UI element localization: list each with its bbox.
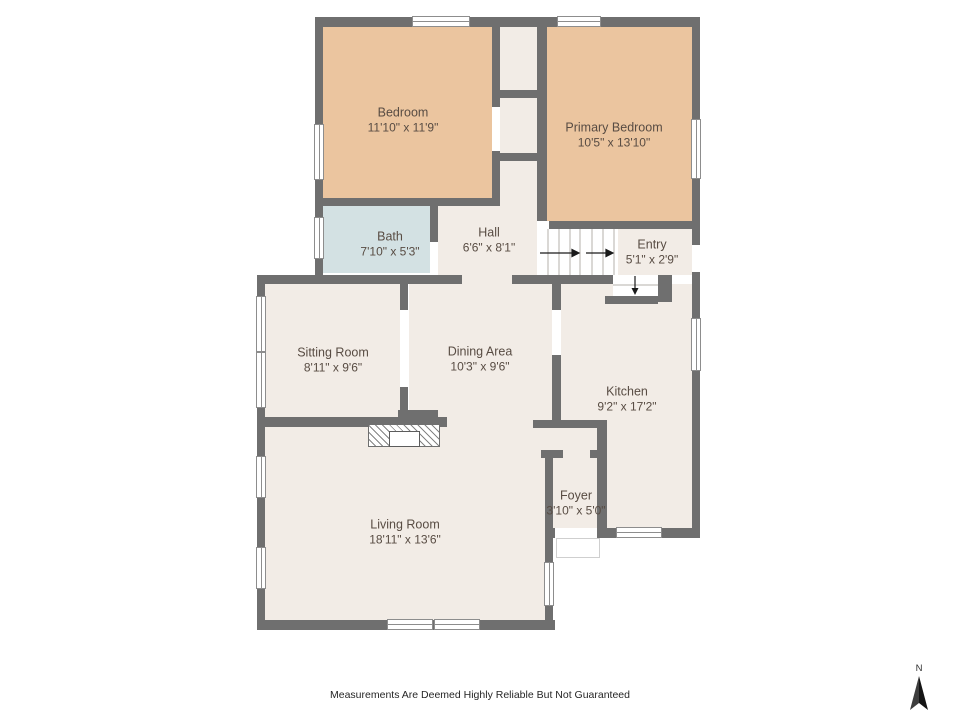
room-dims: 8'11" x 9'6" bbox=[297, 360, 369, 374]
wall-segment bbox=[500, 90, 537, 98]
window-marker bbox=[314, 217, 324, 259]
wall-segment bbox=[400, 284, 408, 310]
wall-segment bbox=[549, 221, 700, 229]
room-label-hall: Hall 6'6" x 8'1" bbox=[463, 226, 515, 255]
room-dims: 9'2" x 17'2" bbox=[597, 399, 656, 413]
wall-segment bbox=[552, 355, 561, 420]
wall-segment bbox=[500, 153, 537, 161]
door-opening-entry bbox=[692, 245, 700, 272]
wall-segment bbox=[512, 275, 613, 284]
wall-segment bbox=[315, 198, 500, 206]
window-marker bbox=[691, 318, 701, 371]
room-name: Kitchen bbox=[597, 385, 656, 400]
window-marker bbox=[387, 619, 433, 630]
front-step bbox=[556, 538, 600, 558]
compass-north-label: N bbox=[905, 663, 933, 674]
room-label-living-room: Living Room 18'11" x 13'6" bbox=[369, 518, 441, 547]
room-name: Foyer bbox=[546, 489, 605, 504]
room-dims: 10'5" x 13'10" bbox=[565, 135, 662, 149]
wall-segment bbox=[658, 275, 672, 302]
north-arrow-icon bbox=[906, 674, 932, 714]
room-dims: 18'11" x 13'6" bbox=[369, 532, 441, 546]
wall-segment bbox=[533, 420, 607, 428]
room-dims: 11'10" x 11'9" bbox=[368, 120, 439, 134]
room-name: Entry bbox=[626, 238, 678, 253]
room-dims: 10'3" x 9'6" bbox=[448, 359, 513, 373]
room-label-kitchen: Kitchen 9'2" x 17'2" bbox=[597, 385, 656, 414]
room-label-sitting-room: Sitting Room 8'11" x 9'6" bbox=[297, 346, 369, 375]
window-marker bbox=[256, 456, 266, 498]
window-marker bbox=[691, 119, 701, 179]
wall-segment bbox=[545, 528, 555, 538]
wall-segment bbox=[545, 538, 553, 563]
room-label-foyer: Foyer 3'10" x 5'0" bbox=[546, 489, 605, 518]
staircase-down-treads bbox=[613, 275, 658, 296]
staircase-up-treads bbox=[537, 229, 618, 275]
chimney-wall bbox=[398, 410, 438, 425]
window-marker bbox=[544, 562, 554, 606]
wall-segment bbox=[692, 17, 700, 538]
room-label-bath: Bath 7'10" x 5'3" bbox=[360, 230, 419, 259]
window-marker bbox=[256, 352, 266, 408]
firebox bbox=[389, 431, 420, 447]
window-marker bbox=[314, 124, 324, 180]
room-name: Bedroom bbox=[368, 106, 439, 121]
window-marker bbox=[256, 547, 266, 589]
room-dims: 3'10" x 5'0" bbox=[546, 503, 605, 517]
window-marker bbox=[557, 16, 601, 27]
staircase-up bbox=[537, 229, 618, 275]
room-name: Primary Bedroom bbox=[565, 121, 662, 136]
room-dims: 5'1" x 2'9" bbox=[626, 252, 678, 266]
room-label-dining-area: Dining Area 10'3" x 9'6" bbox=[448, 345, 513, 374]
compass: N bbox=[905, 663, 933, 719]
floor-plan: Bedroom 11'10" x 11'9" Primary Bedroom 1… bbox=[0, 0, 960, 720]
room-dims: 6'6" x 8'1" bbox=[463, 240, 515, 254]
room-label-bedroom: Bedroom 11'10" x 11'9" bbox=[368, 106, 439, 135]
room-label-entry: Entry 5'1" x 2'9" bbox=[626, 238, 678, 267]
wall-segment bbox=[257, 275, 462, 284]
window-marker bbox=[616, 527, 662, 538]
wall-segment bbox=[492, 27, 500, 107]
room-name: Hall bbox=[463, 226, 515, 241]
window-marker bbox=[412, 16, 470, 27]
room-name: Sitting Room bbox=[297, 346, 369, 361]
wall-segment bbox=[315, 17, 700, 27]
room-name: Bath bbox=[360, 230, 419, 245]
wall-segment bbox=[605, 296, 658, 304]
wall-segment bbox=[541, 450, 563, 458]
disclaimer-text: Measurements Are Deemed Highly Reliable … bbox=[330, 689, 630, 701]
wall-segment bbox=[430, 206, 438, 242]
window-marker bbox=[434, 619, 480, 630]
window-marker bbox=[256, 296, 266, 352]
staircase-down bbox=[613, 275, 658, 296]
wall-segment bbox=[537, 27, 547, 221]
room-name: Dining Area bbox=[448, 345, 513, 360]
room-label-primary-bedroom: Primary Bedroom 10'5" x 13'10" bbox=[565, 121, 662, 150]
fireplace bbox=[368, 424, 440, 447]
wall-segment bbox=[552, 284, 561, 310]
room-name: Living Room bbox=[369, 518, 441, 533]
room-dims: 7'10" x 5'3" bbox=[360, 244, 419, 258]
